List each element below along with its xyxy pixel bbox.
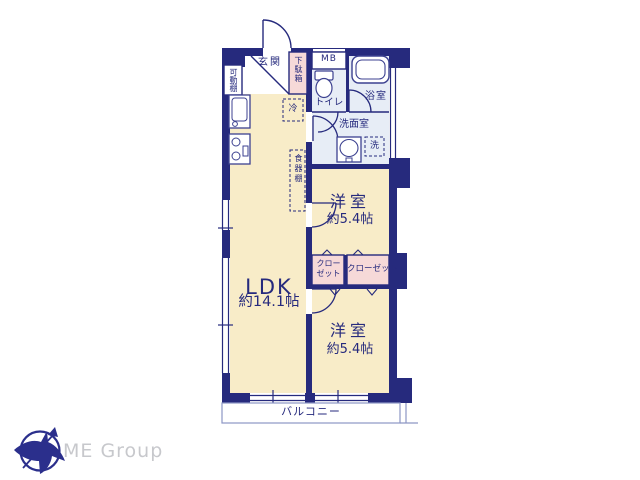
movable-shelf-label: 可動棚	[228, 68, 237, 94]
bedroom-upper-size: 約5.4帖	[310, 213, 390, 228]
me-group-logo-icon	[10, 424, 68, 478]
toilet-icon	[315, 71, 333, 98]
entrance-label: 玄関	[250, 57, 290, 68]
bathtub-icon	[352, 56, 389, 83]
meter-box-label: MB	[312, 54, 346, 64]
balcony-label: バルコニー	[256, 406, 366, 418]
toilet-label: トイレ	[309, 98, 349, 109]
bathroom-label: 浴室	[356, 91, 396, 102]
washer-label: 洗	[365, 141, 384, 151]
washroom-label: 洗面室	[324, 119, 384, 130]
kitchen-sink-icon	[229, 95, 250, 128]
entrance-door	[263, 20, 291, 48]
window-right-bathroom	[389, 68, 397, 158]
cupboard-label: 食器棚	[293, 154, 302, 208]
company-name: ME Group	[63, 440, 163, 462]
closet-wide-label: クローゼット	[347, 265, 389, 275]
shoe-box-label: 下駄箱	[293, 56, 302, 92]
stove-icon	[229, 134, 250, 164]
closet-small-label: クローゼット	[315, 259, 342, 280]
bedroom-upper-name: 洋室	[310, 193, 390, 211]
bedroom-lower-name: 洋室	[310, 322, 390, 340]
washbasin-icon	[337, 137, 361, 162]
fridge-label: 冷	[283, 104, 303, 114]
ldk-size: 約14.1帖	[226, 294, 312, 310]
bedroom-lower-size: 約5.4帖	[310, 343, 390, 358]
window-left-upper	[221, 200, 230, 230]
floor-plan-page: 玄関 下駄箱 MB トイレ 浴室 洗面室 洗 冷 可動棚 食器棚 洋室 約5.4…	[0, 0, 640, 480]
